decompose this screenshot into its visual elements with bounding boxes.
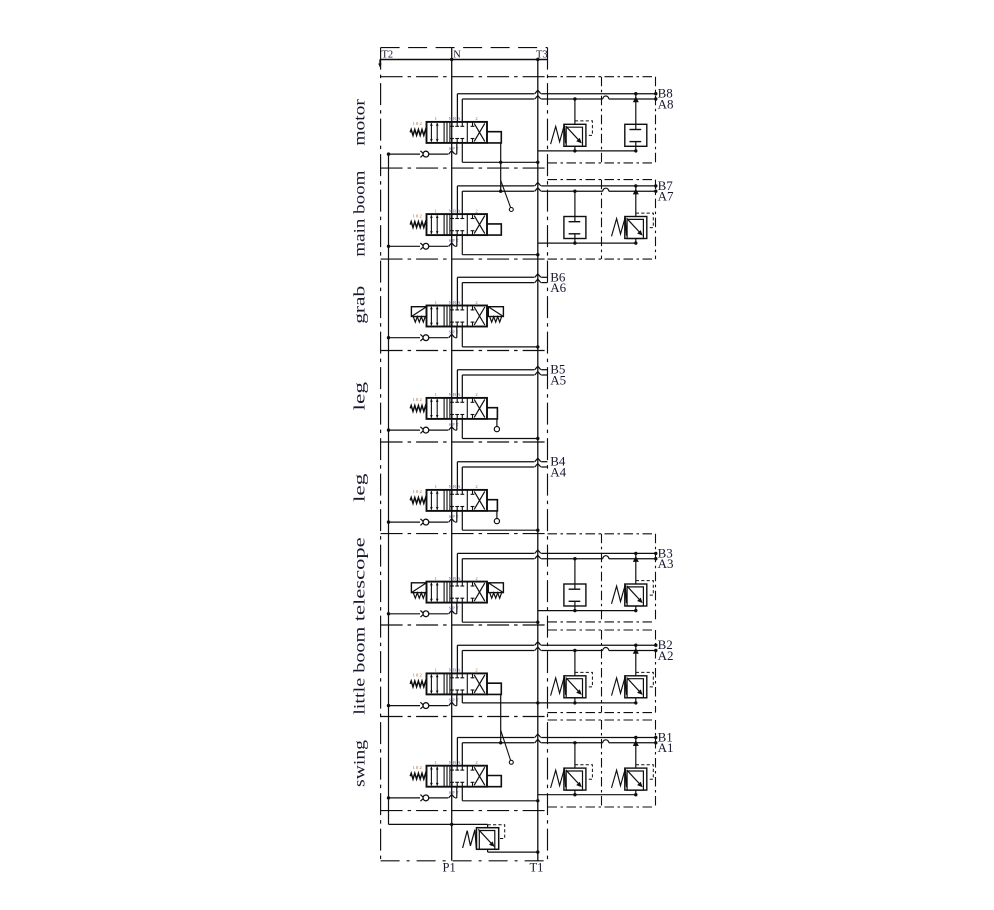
svg-text:N B A: N B A	[449, 668, 462, 673]
svg-text:T1: T1	[530, 861, 544, 875]
svg-text:N B A: N B A	[449, 392, 462, 397]
svg-text:leg: leg	[352, 474, 369, 503]
svg-text:motor: motor	[352, 98, 369, 145]
svg-text:little boom: little boom	[352, 626, 369, 715]
svg-text:S P T: S P T	[449, 790, 459, 795]
svg-text:leg: leg	[352, 382, 369, 411]
svg-text:S P T: S P T	[449, 422, 459, 427]
svg-text:N B A: N B A	[449, 484, 462, 489]
svg-text:A7: A7	[658, 189, 674, 204]
svg-text:1 0 2: 1 0 2	[413, 121, 423, 126]
svg-text:N B A: N B A	[449, 208, 462, 213]
svg-text:N B A: N B A	[449, 116, 462, 121]
svg-text:1 0 2: 1 0 2	[413, 489, 423, 494]
svg-text:1 0 2: 1 0 2	[413, 397, 423, 402]
svg-text:A3: A3	[658, 556, 674, 571]
svg-text:A4: A4	[550, 464, 566, 479]
svg-text:swing: swing	[352, 740, 369, 787]
svg-text:1 0 2: 1 0 2	[413, 765, 423, 770]
svg-text:N B A: N B A	[449, 300, 462, 305]
svg-text:S P T: S P T	[449, 606, 459, 611]
svg-text:S P T: S P T	[449, 238, 459, 243]
svg-text:S P T: S P T	[449, 514, 459, 519]
svg-text:N: N	[453, 49, 461, 60]
svg-text:1 0 2: 1 0 2	[413, 213, 423, 218]
svg-text:T2: T2	[382, 49, 394, 60]
svg-text:P1: P1	[443, 861, 456, 875]
svg-text:N B A: N B A	[449, 760, 462, 765]
svg-text:A5: A5	[550, 372, 566, 387]
svg-text:A1: A1	[658, 740, 674, 755]
svg-text:A6: A6	[550, 280, 566, 295]
svg-text:main boom: main boom	[352, 170, 369, 257]
svg-text:A8: A8	[658, 96, 674, 111]
svg-text:telescope: telescope	[352, 537, 369, 621]
svg-text:S P T: S P T	[449, 146, 459, 151]
svg-text:N B A: N B A	[449, 576, 462, 581]
svg-text:S P T: S P T	[449, 698, 459, 703]
svg-text:S P T: S P T	[449, 330, 459, 335]
svg-text:grab: grab	[352, 286, 369, 324]
svg-text:1 0 2: 1 0 2	[413, 673, 423, 678]
svg-text:A2: A2	[658, 648, 674, 663]
